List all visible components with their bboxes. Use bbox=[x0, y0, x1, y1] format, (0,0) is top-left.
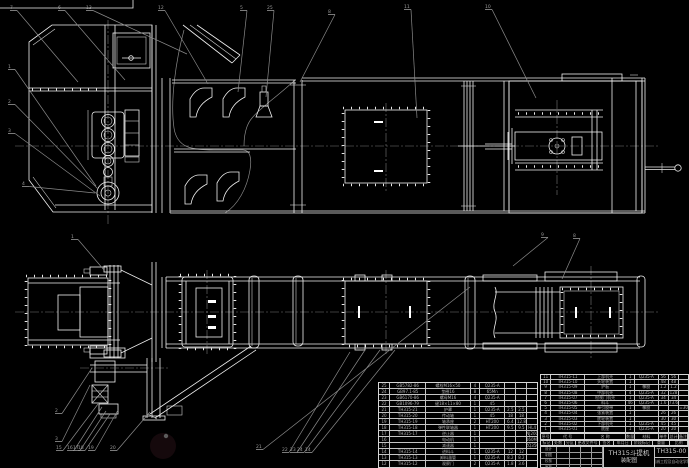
elevator-column bbox=[152, 25, 170, 213]
item-balloon: 13 bbox=[86, 5, 187, 54]
item-balloon: 16 bbox=[67, 407, 102, 451]
item-balloon: 11 bbox=[404, 4, 417, 118]
bom-cell: 20 bbox=[659, 427, 669, 432]
top-view bbox=[15, 20, 681, 225]
organization-name: 机械工程及自动化学院 bbox=[655, 458, 688, 468]
svg-text:20: 20 bbox=[110, 445, 116, 451]
svg-text:1: 1 bbox=[8, 64, 11, 70]
header-cell: 重量 bbox=[653, 441, 671, 445]
signature-grid: 设计制图校核审核 bbox=[541, 447, 604, 467]
header-cell: 单件 bbox=[659, 434, 669, 439]
header-cell: 数量 bbox=[626, 434, 635, 439]
item-balloon: 22 bbox=[282, 352, 350, 453]
svg-text:19: 19 bbox=[88, 445, 94, 451]
item-balloon: 1 bbox=[8, 64, 96, 186]
drawing-number: TH315-00 bbox=[655, 447, 688, 458]
item-balloon: 2 bbox=[8, 99, 98, 189]
item-balloon: 23 bbox=[290, 350, 365, 453]
svg-text:3: 3 bbox=[8, 128, 11, 134]
head-section bbox=[29, 25, 152, 212]
bom-cell: 底座 bbox=[585, 427, 626, 432]
item-balloon: 9 bbox=[513, 232, 548, 266]
bom-row: 12TH315-12观察门2Q235-A1.83.6 bbox=[379, 461, 537, 467]
svg-text:7: 7 bbox=[10, 5, 13, 11]
item-balloon: 4 bbox=[22, 181, 95, 193]
svg-text:13: 13 bbox=[86, 5, 92, 11]
drive-assembly-top-view bbox=[458, 74, 645, 213]
bom-cell: 观察门 bbox=[426, 461, 470, 467]
bom-cell bbox=[527, 461, 536, 467]
svg-text:8: 8 bbox=[328, 9, 331, 15]
bom-cell: 1.8 bbox=[505, 461, 516, 467]
horizontal-casing-top-view bbox=[170, 74, 681, 213]
bom-cell: 20 bbox=[669, 427, 679, 432]
bom-cell: 12 bbox=[379, 461, 390, 467]
drawing-title: TH315斗提机 bbox=[609, 450, 650, 457]
bom-cell: TH315-01 bbox=[551, 427, 585, 432]
bom-cell bbox=[679, 427, 688, 432]
svg-text:2: 2 bbox=[55, 408, 58, 414]
casing-joint bbox=[290, 80, 306, 213]
bom-cell: Q235-A bbox=[635, 427, 659, 432]
header-cell: 备注 bbox=[679, 434, 688, 439]
bom-row: 1TH315-01底座1Q235-A2020 bbox=[541, 427, 688, 432]
svg-text:12: 12 bbox=[158, 5, 164, 11]
item-balloon: 24 bbox=[297, 350, 380, 453]
item-balloon: 7 bbox=[10, 5, 78, 82]
svg-text:21: 21 bbox=[256, 444, 262, 450]
item-balloon: 12 bbox=[158, 5, 208, 84]
svg-text:3: 3 bbox=[55, 436, 58, 442]
header-cell: 处数 bbox=[553, 441, 565, 445]
svg-text:2: 2 bbox=[8, 99, 11, 105]
bom-cell: 2 bbox=[471, 461, 480, 467]
bom-cell: 1 bbox=[541, 427, 551, 432]
number-cell: TH315-00 机械工程及自动化学院 bbox=[655, 447, 688, 467]
svg-text:1: 1 bbox=[71, 234, 74, 240]
header-cell: 材料 bbox=[635, 434, 659, 439]
header-cell: 名 称 bbox=[585, 434, 626, 439]
header-cell: 比例 bbox=[670, 441, 688, 445]
svg-text:22: 22 bbox=[282, 447, 288, 453]
item-balloon: 1 bbox=[71, 234, 104, 270]
svg-text:23: 23 bbox=[290, 447, 296, 453]
item-balloon: 10 bbox=[485, 4, 536, 98]
svg-text:11: 11 bbox=[404, 4, 410, 10]
svg-text:4: 4 bbox=[22, 181, 25, 187]
header-cell: 分区 bbox=[565, 441, 577, 445]
bom-cell: 1 bbox=[626, 427, 635, 432]
header-cell: 年月日 bbox=[614, 441, 632, 445]
drawing-subtitle: 装配图 bbox=[621, 458, 638, 464]
bom-header-row: 序号代 号名 称数量材料单件总计备注 bbox=[540, 433, 689, 440]
cad-drawing-sheet: 7613125258111012349812315161718192021222… bbox=[0, 0, 689, 468]
item-balloon: 8 bbox=[300, 9, 335, 82]
bom-cell: Q235-A bbox=[480, 461, 505, 467]
svg-text:14: 14 bbox=[305, 447, 311, 453]
bom-cell: TH315-12 bbox=[390, 461, 426, 467]
head-hood-plan bbox=[26, 267, 120, 354]
item-balloon: 5 bbox=[238, 5, 247, 92]
header-cell: 签名 bbox=[600, 441, 615, 445]
watermark-logo bbox=[150, 433, 176, 459]
header-cell: 更改文件号 bbox=[576, 441, 600, 445]
header-cell: 标记 bbox=[541, 441, 553, 445]
svg-text:8: 8 bbox=[573, 233, 576, 239]
svg-text:6: 6 bbox=[58, 5, 61, 11]
svg-text:5: 5 bbox=[240, 5, 243, 11]
svg-text:10: 10 bbox=[485, 4, 491, 10]
discharge-chute-buckets bbox=[172, 25, 296, 213]
tension-rod bbox=[645, 163, 681, 173]
header-cell: 总计 bbox=[669, 434, 679, 439]
header-cell: 代 号 bbox=[551, 434, 585, 439]
item-balloon: 2 bbox=[55, 368, 92, 414]
svg-text:16: 16 bbox=[67, 445, 73, 451]
header-cell: 序号 bbox=[541, 434, 551, 439]
svg-text:15: 15 bbox=[56, 445, 62, 451]
svg-text:24: 24 bbox=[297, 447, 303, 453]
header-cell: 阶段标记 bbox=[632, 441, 653, 445]
svg-text:9: 9 bbox=[541, 232, 544, 238]
title-block: 设计制图校核审核 TH315斗提机 装配图 TH315-00 机械工程及自动化学… bbox=[540, 446, 689, 468]
svg-text:25: 25 bbox=[267, 5, 273, 11]
bom-cell: 3.6 bbox=[516, 461, 527, 467]
sheet-corner-frame bbox=[0, 0, 133, 8]
title-cell: TH315斗提机 装配图 bbox=[604, 447, 655, 467]
bom-table-left: 25GB5782-86螺栓M16×504Q235-A24GB97.1-85垫圈1… bbox=[378, 382, 538, 468]
svg-text:18: 18 bbox=[78, 445, 84, 451]
bom-table-right: 11TH315-11上部机壳1Q235-A565610TH315-10头轮装置1… bbox=[540, 374, 689, 433]
